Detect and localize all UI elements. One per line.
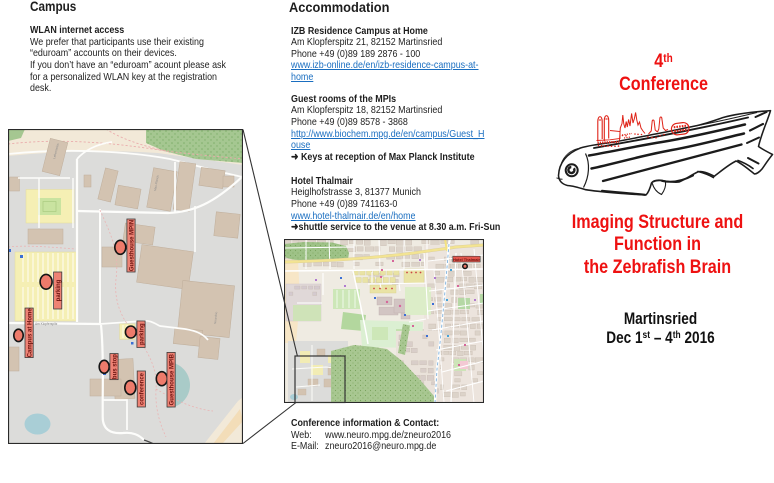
svg-text:Hotel Thalmair: Hotel Thalmair	[453, 257, 481, 262]
svg-text:Am Klopferspitz: Am Klopferspitz	[35, 322, 58, 326]
svg-text:bus stop: bus stop	[112, 354, 118, 379]
svg-text:parking: parking	[139, 323, 145, 345]
svg-text:Guesthouse MPIN: Guesthouse MPIN	[129, 220, 135, 271]
svg-text:Guesthouse MPIB: Guesthouse MPIB	[170, 353, 176, 405]
svg-text:conference: conference	[140, 372, 146, 405]
svg-text:Campus at Home: Campus at Home	[28, 308, 34, 358]
svg-text:parking: parking	[56, 279, 62, 301]
